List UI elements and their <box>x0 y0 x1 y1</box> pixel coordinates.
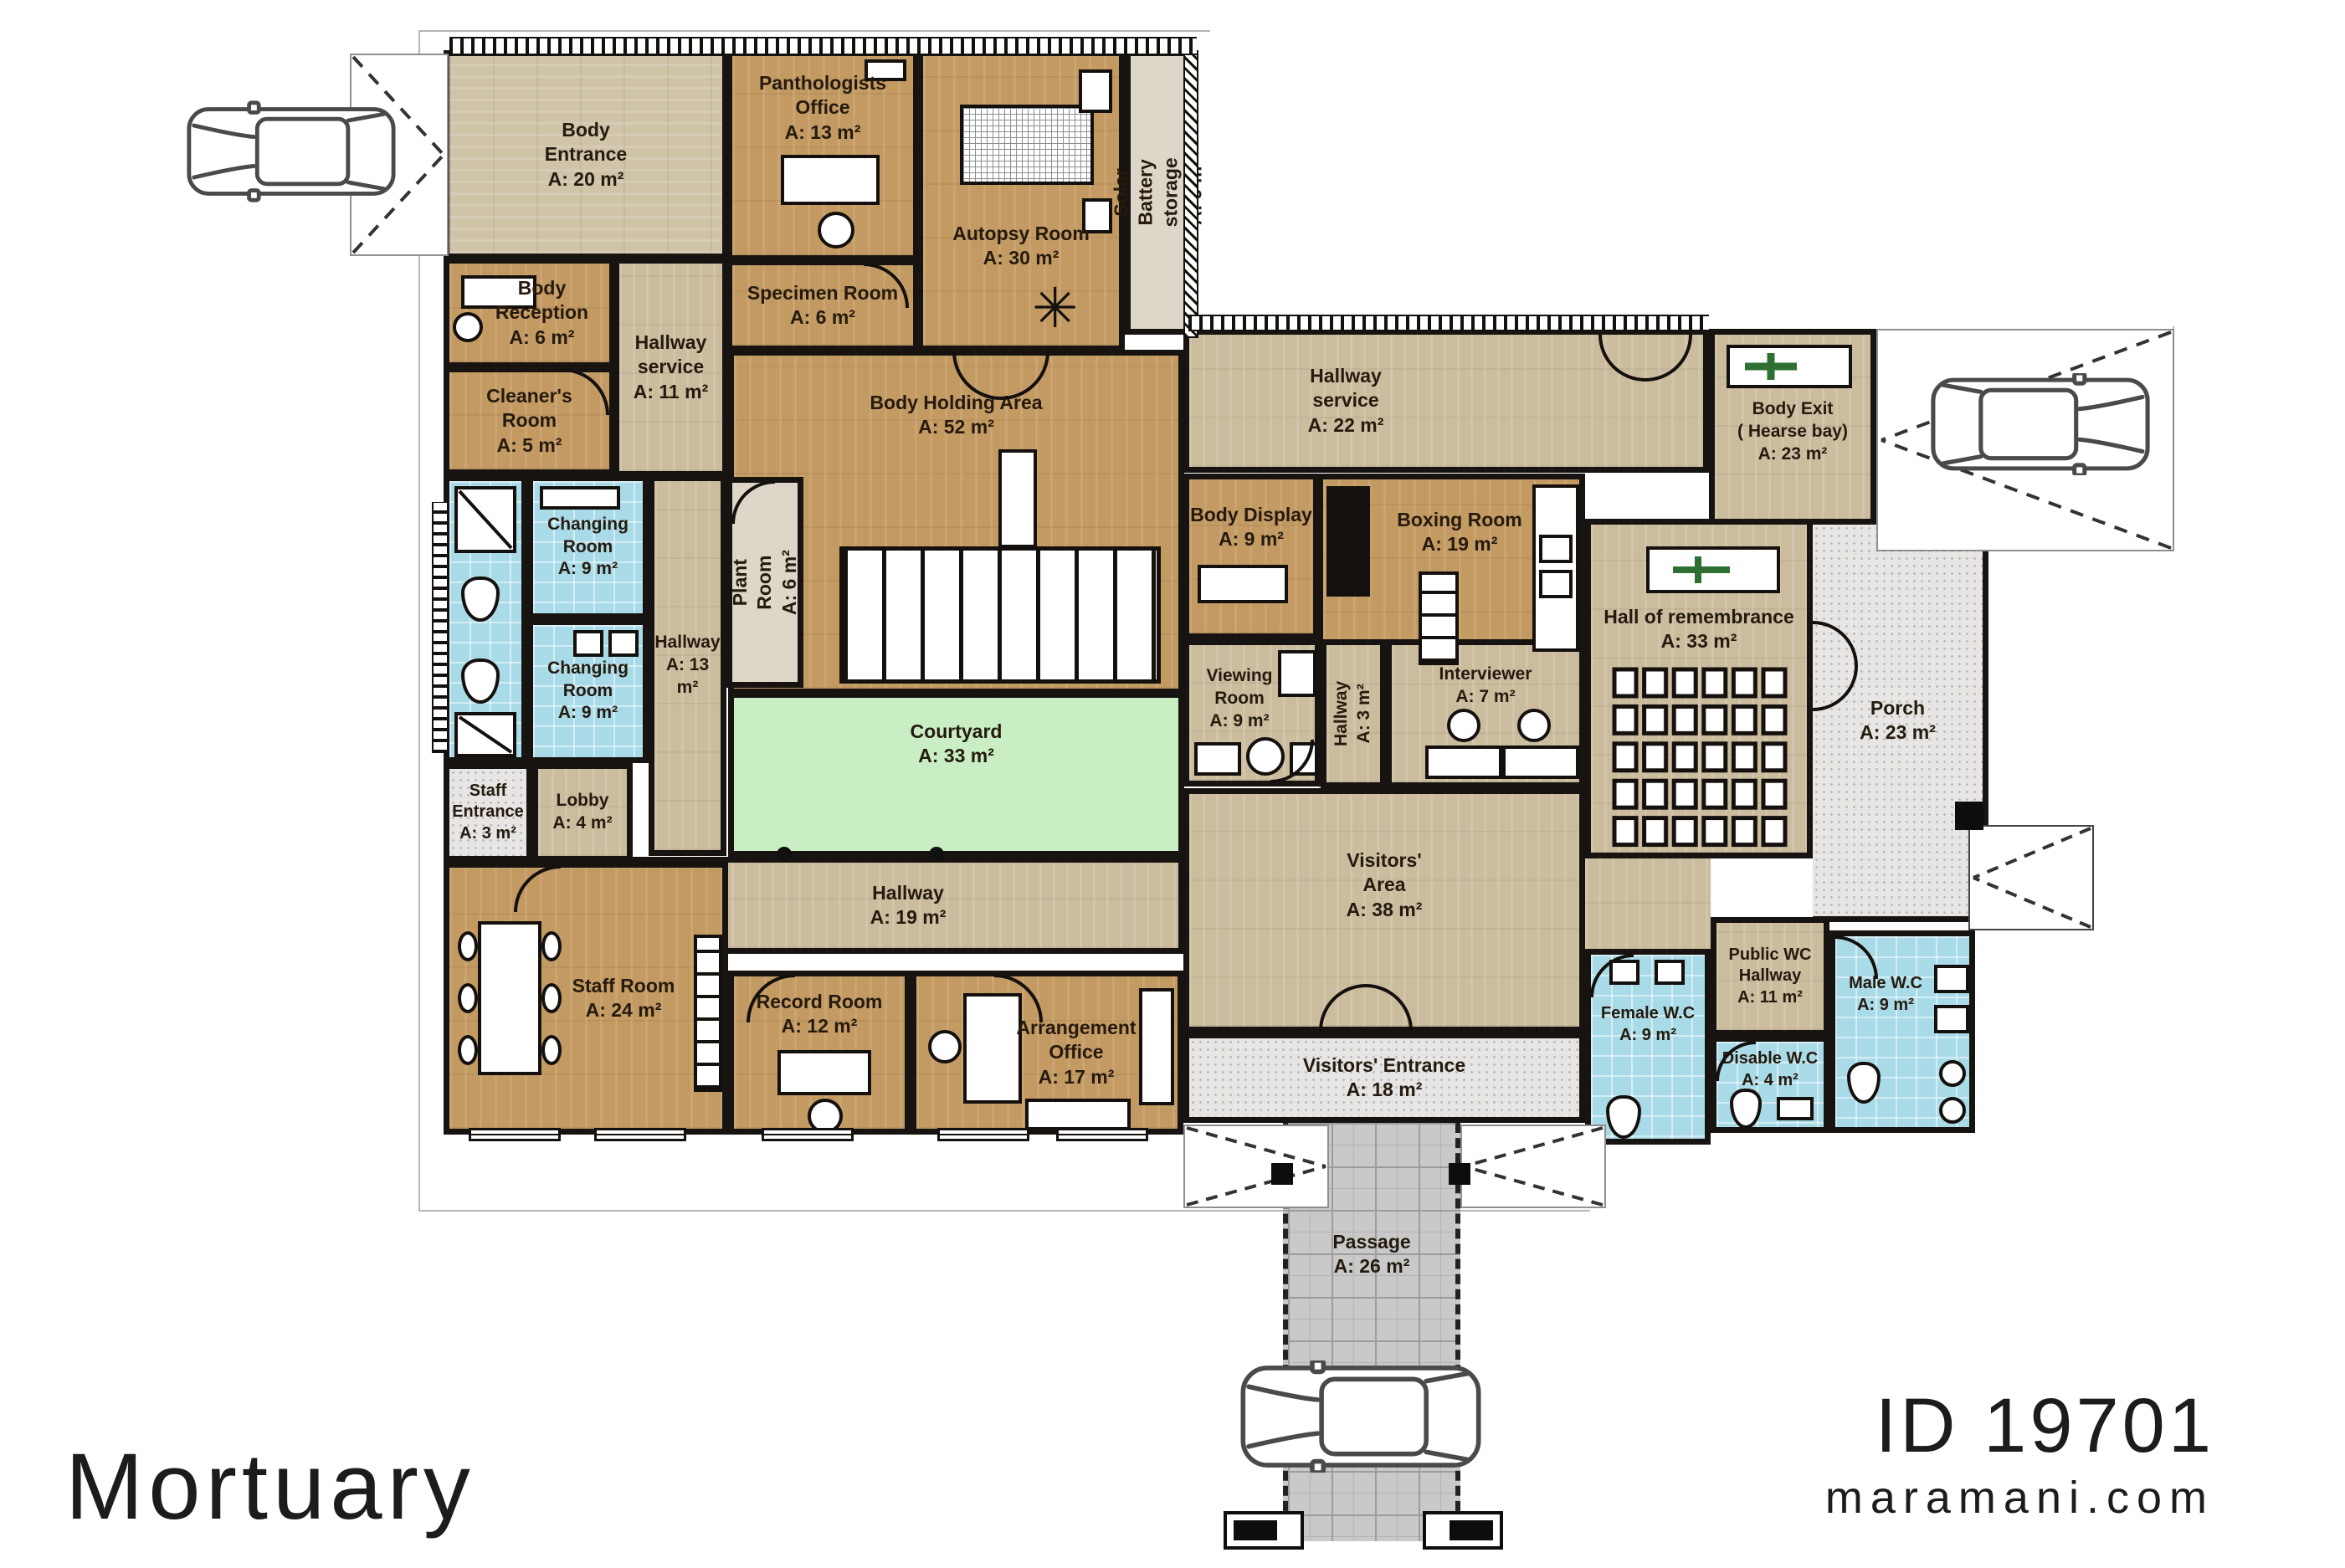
room-label: Staff RoomA: 24 m² <box>572 974 675 1023</box>
room-name: Body Exit ( Hearse bay) <box>1737 399 1848 441</box>
room-name: Public WC Hallway <box>1729 945 1812 986</box>
room-name: Body Entrance <box>545 119 627 165</box>
room-area: A: 18 m² <box>1303 1078 1465 1102</box>
room-label: LobbyA: 4 m² <box>552 790 612 835</box>
room-name: Body Reception <box>495 277 588 323</box>
gate-bar <box>1450 1520 1493 1540</box>
room-public-wc-hallway: Public WC HallwayA: 11 m² <box>1711 917 1829 1036</box>
room-area: A: 23 m² <box>1715 443 1870 466</box>
room-label: Visitors' EntranceA: 18 m² <box>1303 1053 1465 1103</box>
room-name: Staff Room <box>572 975 675 997</box>
chair <box>1447 709 1480 742</box>
bench <box>540 486 620 510</box>
urinal <box>1939 1097 1966 1124</box>
room-name: Staff Entrance <box>452 781 524 822</box>
brand-website: maramani.com <box>1825 1472 2214 1524</box>
toilet <box>461 576 500 622</box>
room-area: A: 33 m² <box>1591 629 1807 653</box>
room-area: A: 17 m² <box>1016 1065 1136 1089</box>
room-area: A: 20 m² <box>545 167 627 192</box>
roof-outline-top <box>418 30 1210 32</box>
room-name: Changing Room <box>547 515 629 556</box>
room-label: Changing RoomA: 9 m² <box>547 514 629 582</box>
room-label: Autopsy RoomA: 30 m² <box>923 222 1119 271</box>
entry-bay-marker <box>1183 1125 1329 1208</box>
room-name: Plant Room <box>729 555 775 609</box>
chair-rows <box>1611 665 1790 851</box>
shower <box>454 712 516 757</box>
room-area: A: 19 m² <box>870 905 947 930</box>
room-label: Panthologists OfficeA: 13 m² <box>732 71 913 145</box>
room-area: A: 6 m² <box>777 550 802 615</box>
courtyard-marker <box>777 847 792 862</box>
room-body-reception: Body ReceptionA: 6 m² <box>444 258 615 368</box>
room-label: Public WC HallwayA: 11 m² <box>1729 945 1812 1009</box>
desk <box>777 1050 871 1095</box>
autopsy-table <box>960 105 1094 185</box>
chair <box>541 1035 562 1065</box>
room-name: Panthologists Office <box>759 72 886 118</box>
room-label: Female W.CA: 9 m² <box>1591 1003 1705 1046</box>
room-label: Body ReceptionA: 6 m² <box>495 276 588 350</box>
room-visitors-entrance: Visitors' EntranceA: 18 m² <box>1183 1033 1585 1123</box>
column <box>998 449 1037 548</box>
room-label: Changing RoomA: 9 m² <box>547 658 629 725</box>
room-label: Boxing RoomA: 19 m² <box>1373 508 1546 557</box>
room-label: Cleaner's RoomA: 5 m² <box>486 384 572 458</box>
entry-bay-marker <box>1460 1125 1606 1208</box>
toilet <box>461 658 500 704</box>
room-area: A: 9 m² <box>547 702 629 725</box>
hearse-car-icon <box>1915 373 2166 475</box>
room-hallway-service-11: Hallway serviceA: 11 m² <box>613 258 728 477</box>
shower <box>454 486 516 553</box>
room-name: Body Display <box>1190 504 1312 525</box>
room-area: A: 24 m² <box>572 998 675 1022</box>
room-name: Arrangement Office <box>1016 1017 1136 1063</box>
sink <box>1655 960 1685 985</box>
room-label: Body DisplayA: 9 m² <box>1189 503 1313 552</box>
chair <box>541 983 562 1013</box>
porch-entry-marker <box>1968 825 2094 930</box>
room-arrangement-office: Arrangement OfficeA: 17 m² <box>911 971 1183 1135</box>
room-area: A: 26 m² <box>1332 1254 1410 1278</box>
room-area: A: 6 m² <box>747 305 898 330</box>
cabinet <box>1139 988 1174 1105</box>
window-strip <box>432 502 449 753</box>
meeting-table <box>478 921 541 1075</box>
gate-pillar <box>1224 1511 1304 1550</box>
room-hallway-13: HallwayA: 13 m² <box>649 475 726 856</box>
room-name: Hallway <box>1332 681 1351 746</box>
room-name: Porch <box>1870 697 1925 719</box>
sofa <box>1194 742 1241 776</box>
room-label: HallwayA: 13 m² <box>654 632 721 699</box>
room-porch: PorchA: 23 m² <box>1813 519 1988 922</box>
body-storage-racks <box>839 546 1161 684</box>
room-area: A: 9 m² <box>1835 995 1936 1017</box>
room-label: HallwayA: 3 m² <box>1331 681 1376 746</box>
office-chair <box>928 1030 962 1063</box>
room-label: Body Holding AreaA: 52 m² <box>870 391 1042 440</box>
room-area: A: 5 m² <box>486 433 572 458</box>
room-area: A: 19 m² <box>1373 532 1546 556</box>
room-name: Boxing Room <box>1397 509 1522 530</box>
room-name: Visitors' Entrance <box>1303 1054 1465 1076</box>
room-label: Male W.CA: 9 m² <box>1835 973 1936 1016</box>
room-hall-of-remembrance: Hall of remembranceA: 33 m² <box>1585 519 1813 858</box>
window <box>594 1128 686 1141</box>
shelving <box>1419 571 1459 665</box>
room-name: Hallway service <box>1310 365 1382 411</box>
porch-post <box>1955 802 1983 830</box>
sink <box>573 630 603 657</box>
room-name: Hall of remembrance <box>1604 606 1794 628</box>
sink <box>1777 1097 1814 1120</box>
room-label: HallwayA: 19 m² <box>870 881 947 930</box>
room-area: A: 7 m² <box>1392 686 1579 709</box>
plan-title: Mortuary <box>65 1432 475 1540</box>
room-label: Hallway serviceA: 22 m² <box>1308 364 1384 438</box>
room-name: Autopsy Room <box>952 223 1090 244</box>
room-staff-room: Staff RoomA: 24 m² <box>444 862 728 1135</box>
solar-wall-hatch <box>1183 50 1198 338</box>
conveyor <box>1326 486 1370 597</box>
room-area: A: 9 m² <box>1591 1025 1705 1047</box>
window <box>937 1128 1029 1141</box>
room-area: A: 52 m² <box>870 415 1042 439</box>
counter <box>1079 69 1112 113</box>
sink <box>1539 570 1573 598</box>
display-table <box>1198 565 1288 603</box>
room-label: Body Exit ( Hearse bay)A: 23 m² <box>1715 398 1870 466</box>
room-area: A: 9 m² <box>547 558 629 581</box>
room-name: Visitors' Area <box>1347 849 1421 895</box>
office-chair <box>818 212 854 249</box>
room-label: Staff EntranceA: 3 m² <box>452 781 524 845</box>
window <box>469 1128 561 1141</box>
stretcher-table <box>1727 345 1852 388</box>
room-changing-room-2: Changing RoomA: 9 m² <box>527 619 649 763</box>
room-name: Cleaner's Room <box>486 385 572 431</box>
desk <box>1502 746 1579 779</box>
room-name: Hallway <box>872 882 944 904</box>
room-name: Hallway <box>654 633 720 652</box>
room-label: PorchA: 23 m² <box>1860 696 1936 746</box>
room-label: CourtyardA: 33 m² <box>911 720 1003 769</box>
urinal <box>1939 1060 1966 1087</box>
sink <box>608 630 639 657</box>
hearse-car-icon <box>186 90 397 213</box>
room-name: Passage <box>1332 1231 1410 1253</box>
room-label: Hallway serviceA: 11 m² <box>634 331 708 404</box>
gate-bar <box>1234 1520 1277 1540</box>
room-label: InterviewerA: 7 m² <box>1392 664 1579 709</box>
room-name: Changing Room <box>547 658 629 700</box>
room-area: A: 9 m² <box>1189 710 1290 733</box>
room-label: Hall of remembranceA: 33 m² <box>1591 605 1807 654</box>
chair <box>458 1035 478 1065</box>
brand-block: ID 19701 maramani.com <box>1825 1382 2214 1524</box>
room-label: Visitors' AreaA: 38 m² <box>1347 848 1423 922</box>
room-area: A: 13 m² <box>654 654 721 699</box>
room-interviewer: InterviewerA: 7 m² <box>1386 639 1585 788</box>
room-area: A: 4 m² <box>552 812 612 835</box>
toilet <box>1730 1089 1762 1129</box>
room-name: Lobby <box>557 791 609 810</box>
room-area: A: 30 m² <box>923 246 1119 270</box>
room-area: A: 23 m² <box>1860 720 1936 745</box>
chair <box>453 312 483 342</box>
toilet <box>1606 1095 1641 1139</box>
casket-table <box>1646 546 1780 593</box>
room-body-exit: Body Exit ( Hearse bay)A: 23 m² <box>1709 329 1876 530</box>
window-strip <box>449 37 1197 55</box>
room-changing-room-1: Changing RoomA: 9 m² <box>527 475 649 619</box>
window <box>762 1128 854 1141</box>
room-area: A: 33 m² <box>911 744 1003 768</box>
room-name: Courtyard <box>911 720 1003 742</box>
floor-plan-canvas: Body EntranceA: 20 m² Panthologists Offi… <box>0 0 2345 1568</box>
room-name: Female W.C <box>1601 1004 1695 1022</box>
room-label: Plant RoomA: 6 m² <box>728 550 802 615</box>
room-body-entrance: Body EntranceA: 20 m² <box>444 50 728 259</box>
room-area: A: 3 m² <box>1353 681 1376 746</box>
plan-id: ID 19701 <box>1825 1382 2214 1470</box>
room-label: Body EntranceA: 20 m² <box>545 118 627 192</box>
room-area: A: 11 m² <box>1729 987 1812 1009</box>
sink <box>1934 1005 1969 1033</box>
staff-wc-strip <box>444 475 527 763</box>
room-area: A: 6 m² <box>495 325 588 350</box>
room-lobby: LobbyA: 4 m² <box>532 763 633 862</box>
room-area: A: 22 m² <box>1308 413 1384 438</box>
room-staff-entrance: Staff EntranceA: 3 m² <box>444 763 532 862</box>
room-area: A: 13 m² <box>732 120 913 145</box>
toilet <box>1847 1062 1881 1104</box>
gate-post <box>1271 1163 1293 1185</box>
room-label: PassageA: 26 m² <box>1332 1230 1410 1279</box>
fan-symbol: ✳ <box>1032 280 1078 336</box>
chair <box>541 931 562 961</box>
room-area: A: 9 m² <box>1189 527 1313 551</box>
courtyard-marker <box>929 847 944 862</box>
room-label: Arrangement OfficeA: 17 m² <box>1016 1016 1136 1089</box>
sideboard <box>1025 1099 1131 1130</box>
room-area: A: 38 m² <box>1347 898 1423 922</box>
desk <box>781 155 880 205</box>
room-body-display: Body DisplayA: 9 m² <box>1183 474 1319 639</box>
chair <box>458 931 478 961</box>
room-area: A: 11 m² <box>634 380 708 404</box>
window <box>1056 1128 1148 1141</box>
desk <box>1425 746 1502 779</box>
room-autopsy-room: Autopsy RoomA: 30 m² ✳ <box>917 50 1125 351</box>
hallway-patch <box>1585 858 1711 952</box>
gate-post <box>1449 1163 1470 1185</box>
chair <box>1517 709 1551 742</box>
gate-pillar <box>1423 1511 1503 1550</box>
kitchenette <box>694 935 722 1092</box>
room-hallway-3: HallwayA: 3 m² <box>1321 639 1386 788</box>
chair <box>458 983 478 1013</box>
room-area: A: 3 m² <box>452 823 524 845</box>
room-name: Viewing Room <box>1207 666 1273 708</box>
sink <box>1934 965 1969 993</box>
room-name: Interviewer <box>1439 664 1532 684</box>
room-panthologists-office: Panthologists OfficeA: 13 m² <box>726 50 919 261</box>
room-courtyard: CourtyardA: 33 m² <box>728 694 1184 857</box>
window-strip <box>1188 315 1709 331</box>
room-label: Viewing RoomA: 9 m² <box>1189 665 1290 733</box>
room-name: Hallway service <box>635 331 707 377</box>
visitor-car-icon <box>1239 1360 1483 1473</box>
room-name: Solar Battery storage <box>1111 157 1182 227</box>
